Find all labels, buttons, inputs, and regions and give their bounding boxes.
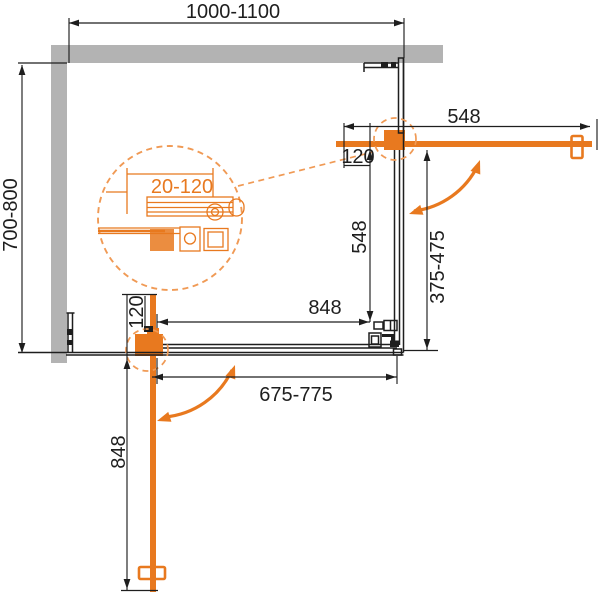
dim-label-bottom-door-width: 848 (108, 435, 130, 468)
left-wall (51, 45, 67, 363)
corner-clamp-inner (372, 336, 379, 344)
dim-arrow (19, 343, 26, 353)
dim-label-right-fixed-side: 548 (349, 220, 371, 253)
dim-label-overall-depth: 700-800 (0, 178, 22, 251)
detail-rail-lines (147, 203, 233, 213)
right-swing-arrowhead-down (407, 205, 423, 219)
detail-adjustment-label: 20-120 (151, 176, 213, 198)
dim-arrow (580, 123, 590, 130)
dim-right-door-width: 548 (344, 106, 597, 168)
corner-pivot-dot (390, 341, 399, 348)
left-profile-screw-2 (67, 340, 73, 345)
top-wall (51, 45, 443, 63)
dim-arrow (344, 123, 354, 130)
left-profile-screw-1 (67, 329, 73, 335)
dim-arrow (394, 20, 404, 27)
dim-bottom-entry: 675-775 (152, 356, 397, 406)
dim-arrow (424, 151, 431, 161)
doors (135, 130, 592, 592)
dim-arrow (158, 319, 168, 326)
dim-label-right-door-width: 548 (447, 106, 480, 128)
bracket-screw-1 (381, 62, 388, 68)
dim-arrow (367, 311, 374, 321)
detail-content: 20-120 (98, 168, 244, 251)
dimensions: 1000-1100 700-800 548 120 (0, 1, 597, 591)
technical-drawing-canvas: 20-120 1000-1100 700-800 (0, 0, 600, 600)
dim-arrow (386, 374, 396, 381)
dim-label-bottom-wall-offset: 120 (126, 295, 148, 328)
dim-right-entry: 375-475 (404, 150, 449, 351)
dim-arrow (359, 319, 369, 326)
detail-carriage-block (150, 229, 174, 251)
dim-arrow (69, 20, 79, 27)
corner-fitting-tab (374, 322, 383, 329)
walls (51, 45, 443, 363)
dim-label-bottom-fixed-side: 848 (308, 297, 341, 319)
bottom-swing-arrowhead-down (155, 412, 171, 426)
bracket-screw-2 (391, 62, 396, 68)
right-door-swing-arc (414, 165, 478, 211)
dim-bottom-fixed-side: 848 (157, 297, 370, 328)
dim-arrow (124, 579, 131, 589)
dim-arrow (19, 65, 26, 75)
dim-arrow (424, 339, 431, 349)
shower-enclosure-plan-drawing: 20-120 1000-1100 700-800 (0, 0, 600, 600)
dim-label-overall-width: 1000-1100 (186, 1, 280, 23)
dim-label-right-entry: 375-475 (427, 230, 449, 303)
detail-bracket-a (180, 227, 200, 251)
enclosure-frame (18, 58, 404, 355)
dim-label-bottom-entry: 675-775 (259, 384, 332, 406)
detail-bracket-b-inner (208, 232, 223, 247)
